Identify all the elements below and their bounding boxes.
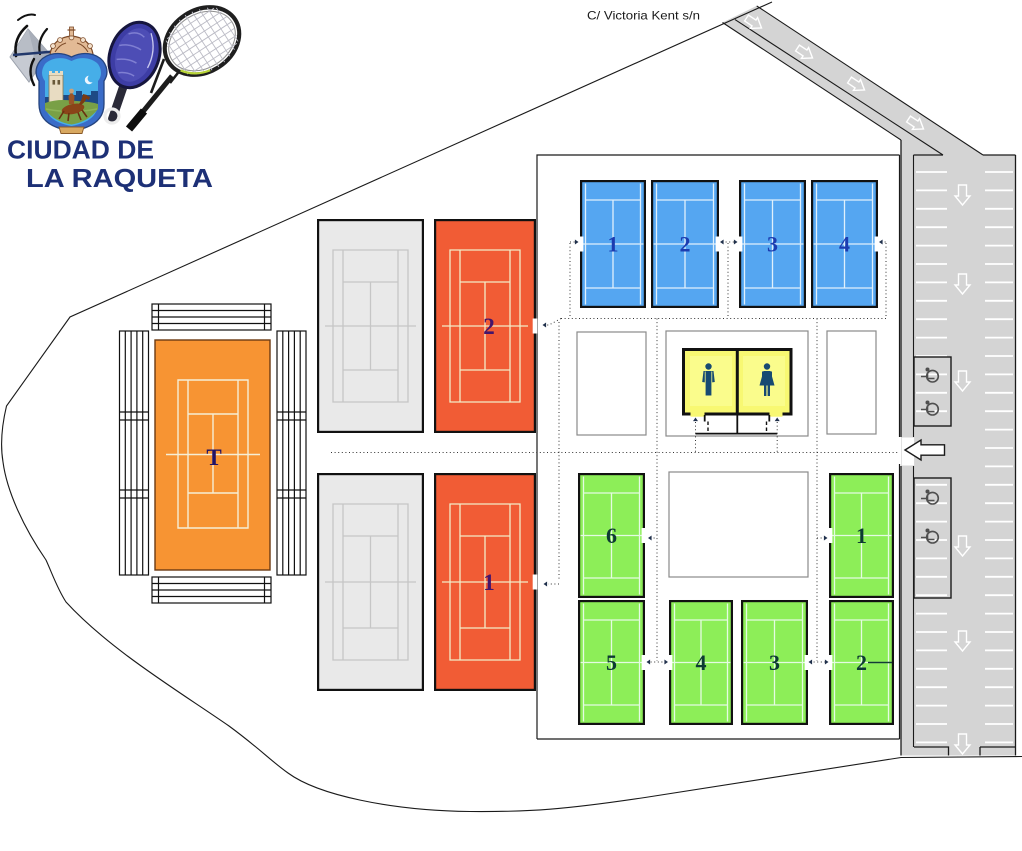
svg-text:1: 1 [483, 570, 495, 595]
svg-text:4: 4 [839, 232, 850, 257]
svg-text:3: 3 [767, 232, 778, 257]
svg-text:5: 5 [606, 650, 617, 675]
svg-text:6: 6 [606, 523, 617, 548]
svg-text:LA RAQUETA: LA RAQUETA [26, 163, 213, 193]
svg-text:T: T [206, 445, 221, 470]
svg-text:1: 1 [856, 523, 867, 548]
svg-text:CIUDAD DE: CIUDAD DE [7, 135, 154, 165]
svg-text:4: 4 [696, 650, 707, 675]
svg-text:C/ Victoria Kent s/n: C/ Victoria Kent s/n [587, 9, 700, 23]
svg-text:3: 3 [769, 650, 780, 675]
svg-text:2: 2 [680, 232, 691, 257]
svg-text:2: 2 [856, 650, 867, 675]
svg-text:1: 1 [608, 232, 619, 257]
svg-text:2: 2 [483, 314, 495, 339]
